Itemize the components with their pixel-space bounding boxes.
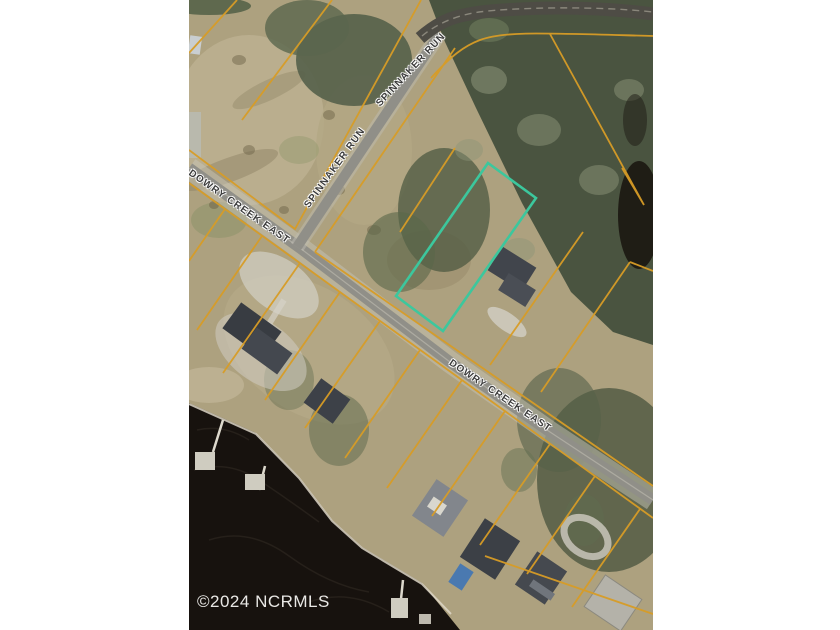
dock-platform bbox=[391, 598, 408, 618]
copyright-watermark: ©2024 NCRMLS bbox=[197, 592, 330, 612]
aerial-map-image[interactable]: SPINNAKER RUN SPINNAKER RUN DOWRY CREEK … bbox=[189, 0, 653, 630]
dock-platform bbox=[419, 614, 431, 624]
page-background: SPINNAKER RUN SPINNAKER RUN DOWRY CREEK … bbox=[0, 0, 840, 630]
dock-platform bbox=[245, 474, 265, 490]
satellite-imagery bbox=[189, 0, 653, 630]
dock-platform bbox=[195, 452, 215, 470]
